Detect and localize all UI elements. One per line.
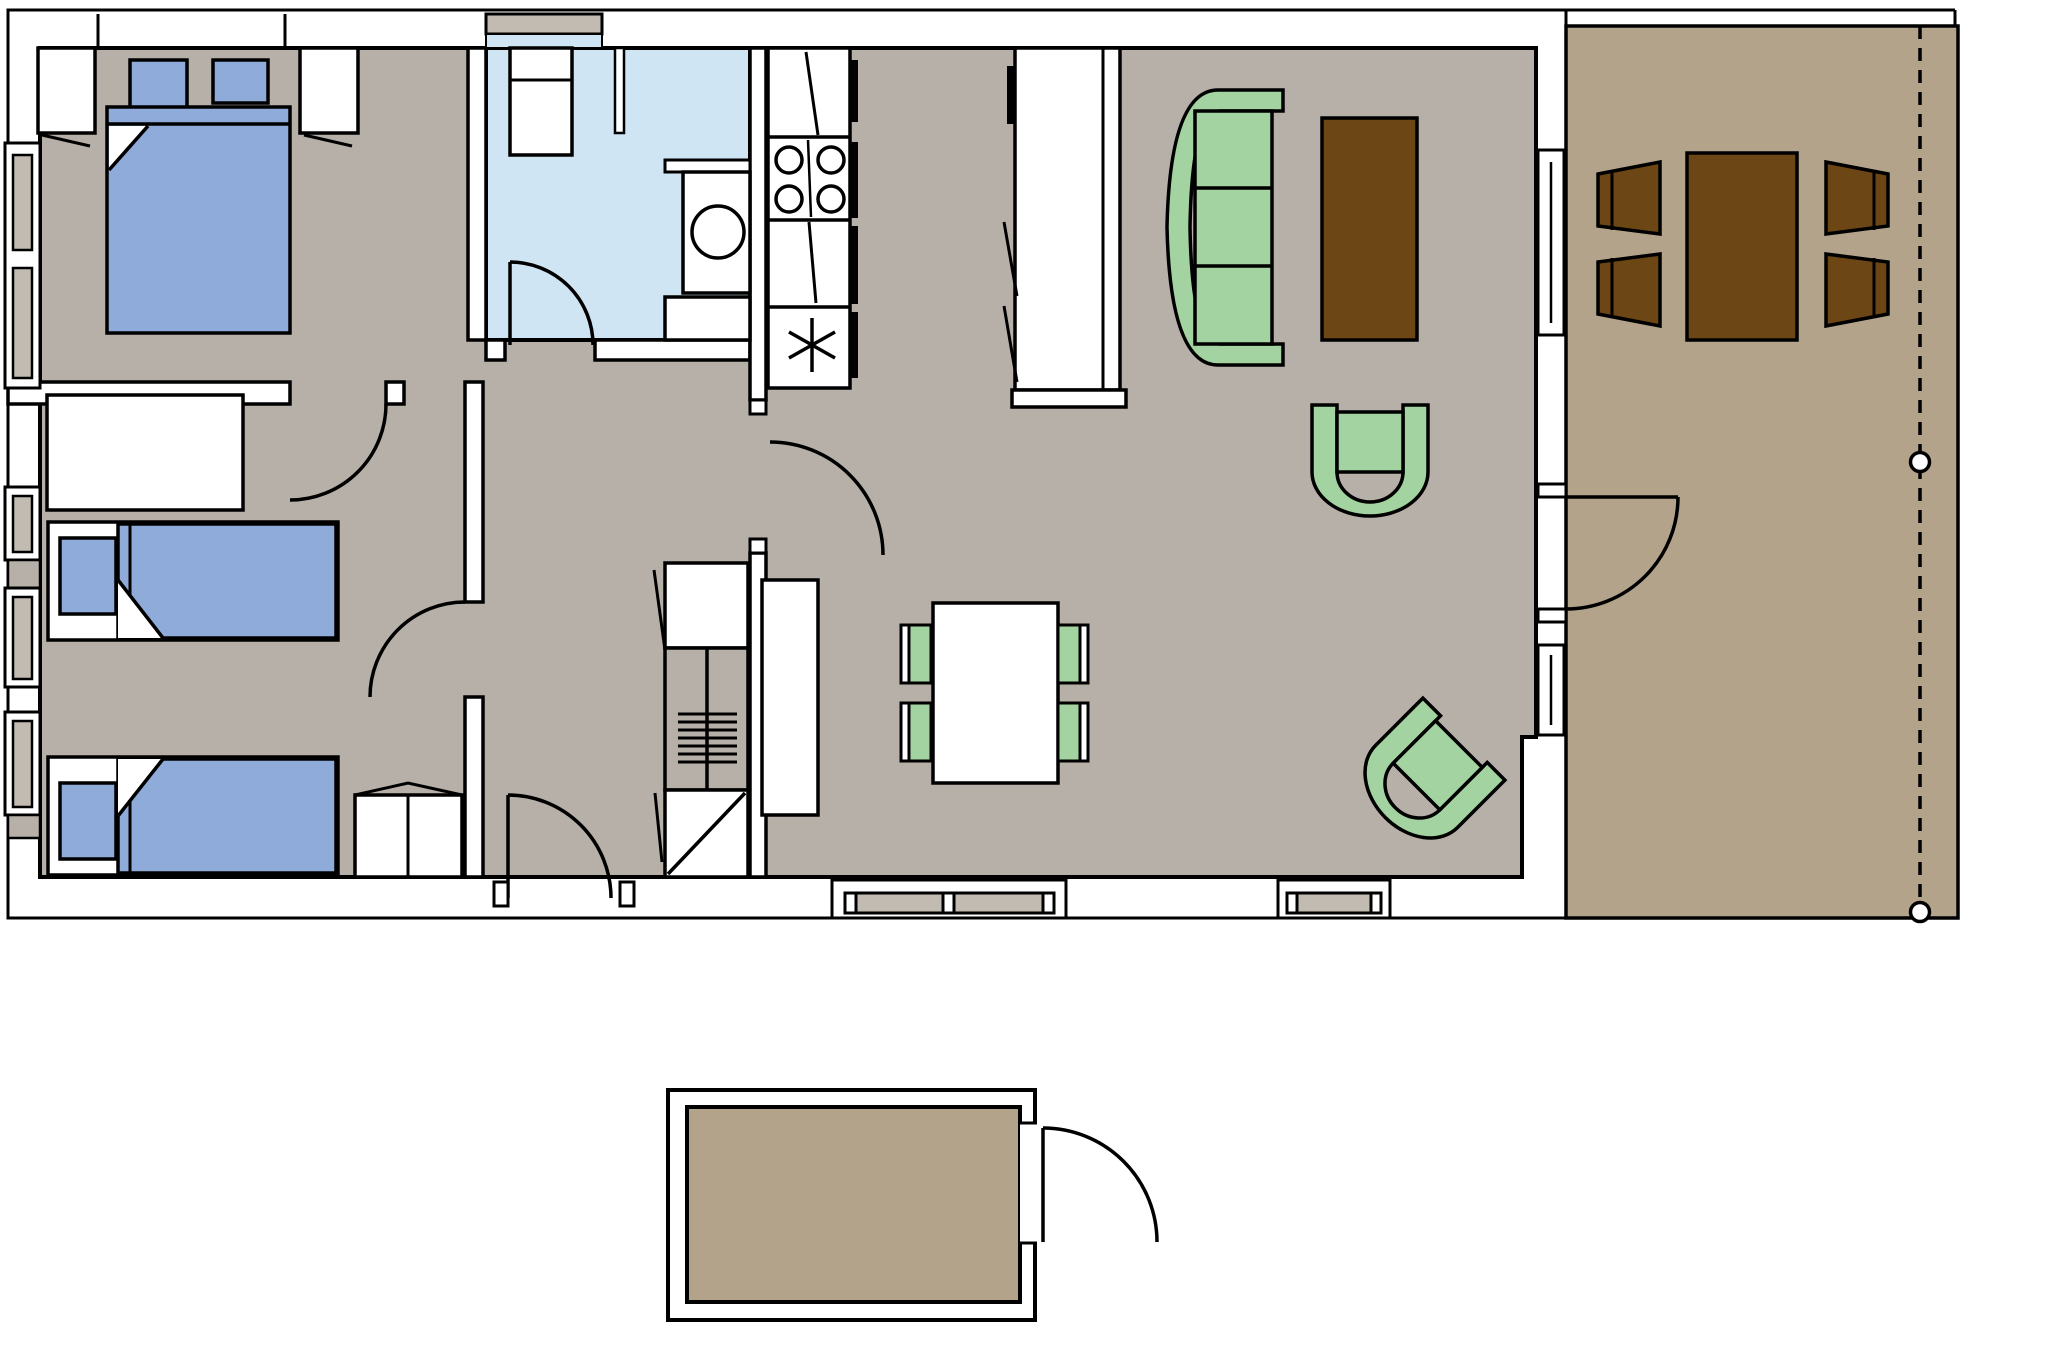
counter-edge-tick	[850, 312, 858, 378]
washbasin	[692, 206, 744, 258]
stove-burner	[818, 147, 844, 173]
pillow	[60, 783, 116, 859]
dining-chair-back	[901, 703, 909, 761]
dining-table	[933, 603, 1058, 783]
terrace-chair	[1598, 162, 1660, 234]
wall-bedroom1-bathroom	[468, 48, 486, 340]
floor-plan	[0, 0, 2048, 1365]
counter-edge-tick	[850, 226, 858, 304]
door-living-jamb-top	[750, 400, 766, 414]
pillow	[60, 538, 116, 614]
window-bedroom1-sash-lower	[13, 268, 32, 378]
window-cap	[1371, 893, 1381, 913]
window-cap	[845, 893, 856, 913]
counter-edge-tick	[850, 142, 858, 218]
counter-edge-tick	[850, 60, 858, 122]
wall-bedrooms-divider-stub	[386, 382, 404, 404]
window-living-south2-sill	[1287, 893, 1381, 913]
armchair-seat	[1337, 412, 1403, 472]
wall-bathroom-south-right	[595, 340, 750, 360]
pergola-post-top	[1911, 453, 1930, 472]
pergola-post-bottom	[1911, 903, 1930, 922]
pillow	[213, 60, 268, 103]
hall-cabinet	[665, 563, 748, 648]
stove-burner	[818, 186, 844, 212]
coffee-table	[1322, 118, 1417, 340]
sofa-seat	[1195, 111, 1272, 344]
tall-cabinet-base	[1012, 390, 1126, 407]
window-bedroom2-sash-1	[13, 496, 32, 552]
kitchen-counter	[768, 48, 850, 388]
door-living-jamb-bottom	[750, 539, 766, 553]
wall-bedroom2-hall-lower	[465, 697, 483, 877]
window-bathroom-outer	[486, 14, 602, 34]
window-bedroom2-sash-2	[13, 597, 32, 679]
door-entrance-jamb-left	[494, 882, 508, 906]
wall-bathroom-south-left	[486, 340, 505, 360]
window-bedroom1-sash-upper	[13, 155, 32, 250]
door-terrace-jamb-bottom	[1538, 609, 1566, 622]
dining-chair-back	[1080, 703, 1088, 761]
sideboard	[762, 580, 818, 815]
stove-burner	[776, 186, 802, 212]
vanity-counter	[665, 160, 750, 172]
window-cap	[1287, 893, 1297, 913]
wall-bedroom2-hall-upper	[465, 382, 483, 602]
shed-door-opening	[1020, 1123, 1037, 1243]
terrace-chair	[1826, 162, 1888, 234]
closet-left	[38, 48, 95, 133]
terrace-table	[1687, 153, 1797, 340]
window-cap	[1043, 893, 1054, 913]
wall-pier-1	[8, 560, 40, 588]
washer	[510, 48, 572, 155]
cabinet-edge-tick	[1007, 66, 1015, 124]
terrace-chair	[1826, 254, 1888, 326]
window-bedroom2-sash-3	[13, 721, 32, 807]
window-bathroom-glass	[486, 34, 602, 48]
shed-door-swing	[1043, 1128, 1157, 1242]
window-cap	[943, 893, 954, 913]
bath-cabinet	[665, 297, 750, 340]
closet-right	[300, 48, 358, 133]
dining-chair-back	[901, 625, 909, 683]
stove-burner	[776, 147, 802, 173]
terrace-chair	[1598, 254, 1660, 326]
bath-partition	[615, 48, 624, 133]
door-terrace-jamb-top	[1538, 484, 1566, 497]
pillow	[130, 60, 187, 108]
wall-kitchen-hall-upper	[750, 48, 766, 400]
shed-floor	[687, 1107, 1020, 1302]
wall-pier-2	[8, 815, 40, 838]
door-entrance-jamb-right	[620, 882, 634, 906]
dining-chair-back	[1080, 625, 1088, 683]
floor-plan-page	[0, 0, 2048, 1365]
desk	[47, 395, 243, 510]
